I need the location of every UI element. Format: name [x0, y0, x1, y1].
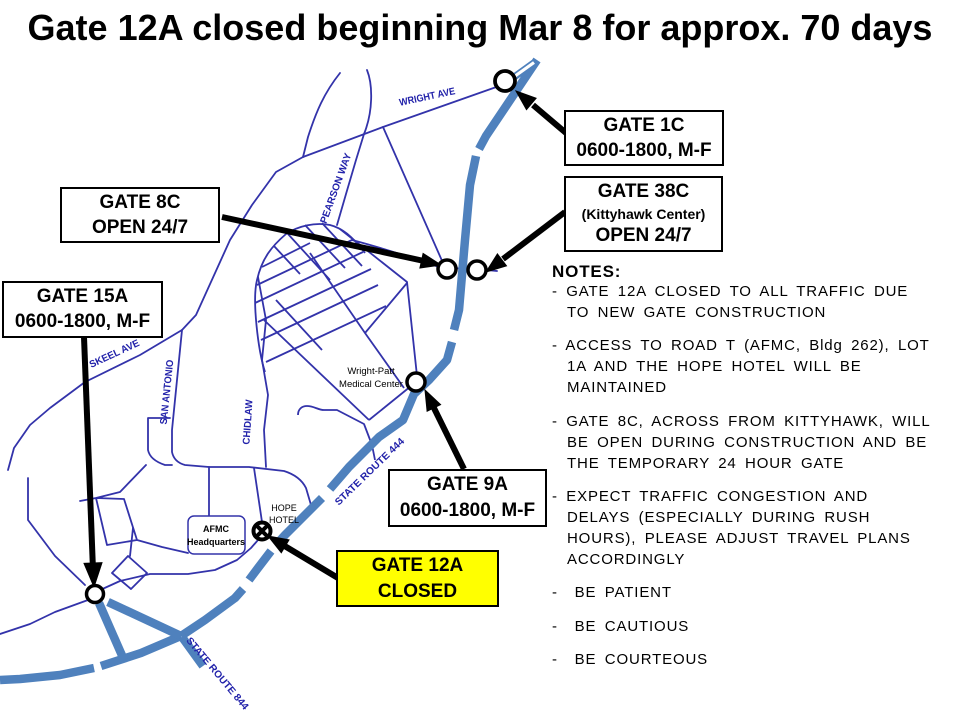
svg-text:WRIGHT AVE: WRIGHT AVE [398, 86, 456, 109]
svg-text:SKEEL AVE: SKEEL AVE [88, 338, 142, 371]
svg-text:AFMC: AFMC [203, 524, 229, 534]
svg-text:Wright-Patt: Wright-Patt [347, 366, 395, 377]
svg-text:PEARSON WAY: PEARSON WAY [319, 152, 355, 226]
svg-text:HOTEL: HOTEL [269, 515, 299, 525]
svg-text:STATE ROUTE 844: STATE ROUTE 844 [183, 636, 250, 713]
svg-text:CHIDLAW: CHIDLAW [241, 399, 255, 445]
svg-text:Headquarters: Headquarters [187, 537, 245, 547]
svg-text:Medical Center: Medical Center [339, 379, 403, 390]
svg-text:HOPE: HOPE [271, 503, 297, 513]
